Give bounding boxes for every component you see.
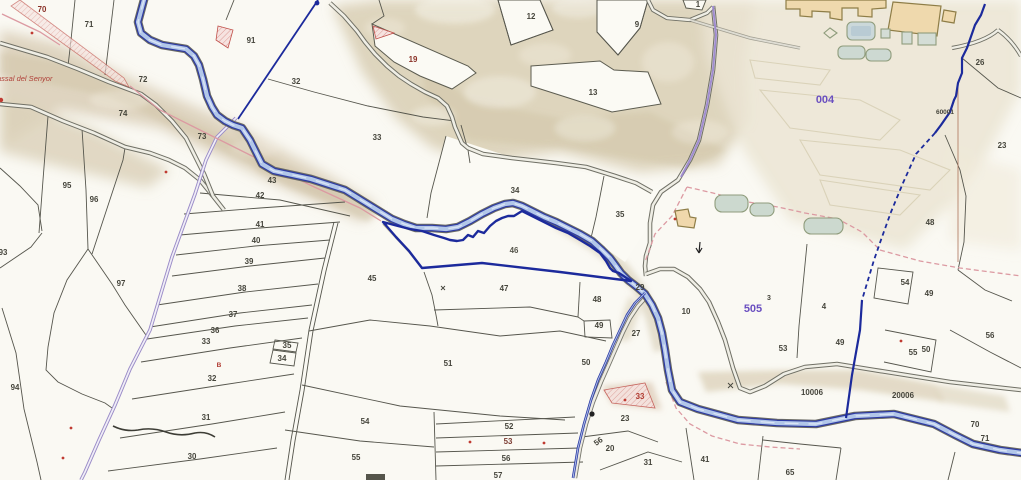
svg-text:33: 33 [636, 392, 645, 401]
svg-text:34: 34 [278, 354, 287, 363]
svg-text:39: 39 [245, 257, 254, 266]
svg-text:96: 96 [90, 195, 99, 204]
svg-text:B: B [217, 362, 222, 369]
svg-text:48: 48 [926, 218, 935, 227]
svg-text:41: 41 [701, 455, 710, 464]
svg-text:71: 71 [85, 20, 94, 29]
svg-text:31: 31 [202, 413, 211, 422]
svg-text:27: 27 [632, 329, 641, 338]
svg-text:48: 48 [593, 295, 602, 304]
svg-text:93: 93 [0, 248, 8, 257]
svg-text:33: 33 [202, 337, 211, 346]
svg-text:26: 26 [976, 58, 985, 67]
svg-text:55: 55 [352, 453, 361, 462]
svg-text:30: 30 [188, 452, 197, 461]
svg-text:73: 73 [198, 132, 207, 141]
svg-text:65: 65 [786, 468, 795, 477]
svg-text:49: 49 [925, 289, 934, 298]
svg-text:32: 32 [292, 77, 301, 86]
svg-text:74: 74 [119, 109, 128, 118]
svg-text:4: 4 [822, 302, 827, 311]
svg-text:53: 53 [779, 344, 788, 353]
svg-text:31: 31 [644, 458, 653, 467]
svg-text:1: 1 [696, 0, 701, 9]
svg-text:60001: 60001 [936, 109, 954, 116]
svg-text:53: 53 [504, 437, 513, 446]
svg-text:10: 10 [682, 307, 691, 316]
svg-text:47: 47 [500, 284, 509, 293]
svg-text:20: 20 [606, 444, 615, 453]
svg-text:57: 57 [494, 471, 503, 480]
svg-text:23: 23 [998, 141, 1007, 150]
svg-text:50: 50 [582, 358, 591, 367]
svg-text:50: 50 [922, 345, 931, 354]
svg-text:70: 70 [971, 420, 980, 429]
svg-text:97: 97 [117, 279, 126, 288]
svg-text:Bassal del Senyor: Bassal del Senyor [0, 74, 53, 83]
svg-text:54: 54 [361, 417, 370, 426]
svg-text:71: 71 [981, 434, 990, 443]
svg-text:20006: 20006 [892, 391, 915, 400]
svg-text:49: 49 [595, 321, 604, 330]
svg-text:91: 91 [247, 36, 256, 45]
svg-text:10006: 10006 [801, 388, 824, 397]
svg-text:35: 35 [283, 341, 292, 350]
svg-text:29: 29 [636, 283, 645, 292]
svg-text:23: 23 [621, 414, 630, 423]
svg-text:37: 37 [229, 310, 238, 319]
svg-text:34: 34 [511, 186, 520, 195]
svg-text:36: 36 [211, 326, 220, 335]
svg-text:38: 38 [238, 284, 247, 293]
svg-text:49: 49 [836, 338, 845, 347]
svg-text:41: 41 [256, 220, 265, 229]
svg-text:95: 95 [63, 181, 72, 190]
svg-text:13: 13 [589, 88, 598, 97]
svg-text:19: 19 [409, 55, 418, 64]
svg-text:70: 70 [38, 5, 47, 14]
svg-text:43: 43 [268, 176, 277, 185]
svg-text:32: 32 [208, 374, 217, 383]
svg-text:51: 51 [444, 359, 453, 368]
svg-text:94: 94 [11, 383, 20, 392]
svg-text:12: 12 [527, 12, 536, 21]
svg-text:56: 56 [986, 331, 995, 340]
svg-text:505: 505 [744, 303, 762, 315]
svg-text:54: 54 [901, 278, 910, 287]
svg-text:52: 52 [505, 422, 514, 431]
svg-text:33: 33 [373, 133, 382, 142]
svg-text:9: 9 [635, 20, 640, 29]
svg-text:72: 72 [139, 75, 148, 84]
svg-text:45: 45 [368, 274, 377, 283]
svg-text:35: 35 [616, 210, 625, 219]
svg-text:42: 42 [256, 191, 265, 200]
svg-text:55: 55 [909, 348, 918, 357]
svg-text:46: 46 [510, 246, 519, 255]
svg-text:56: 56 [502, 454, 511, 463]
svg-text:004: 004 [816, 94, 835, 106]
svg-text:3: 3 [767, 295, 771, 302]
svg-text:40: 40 [252, 236, 261, 245]
